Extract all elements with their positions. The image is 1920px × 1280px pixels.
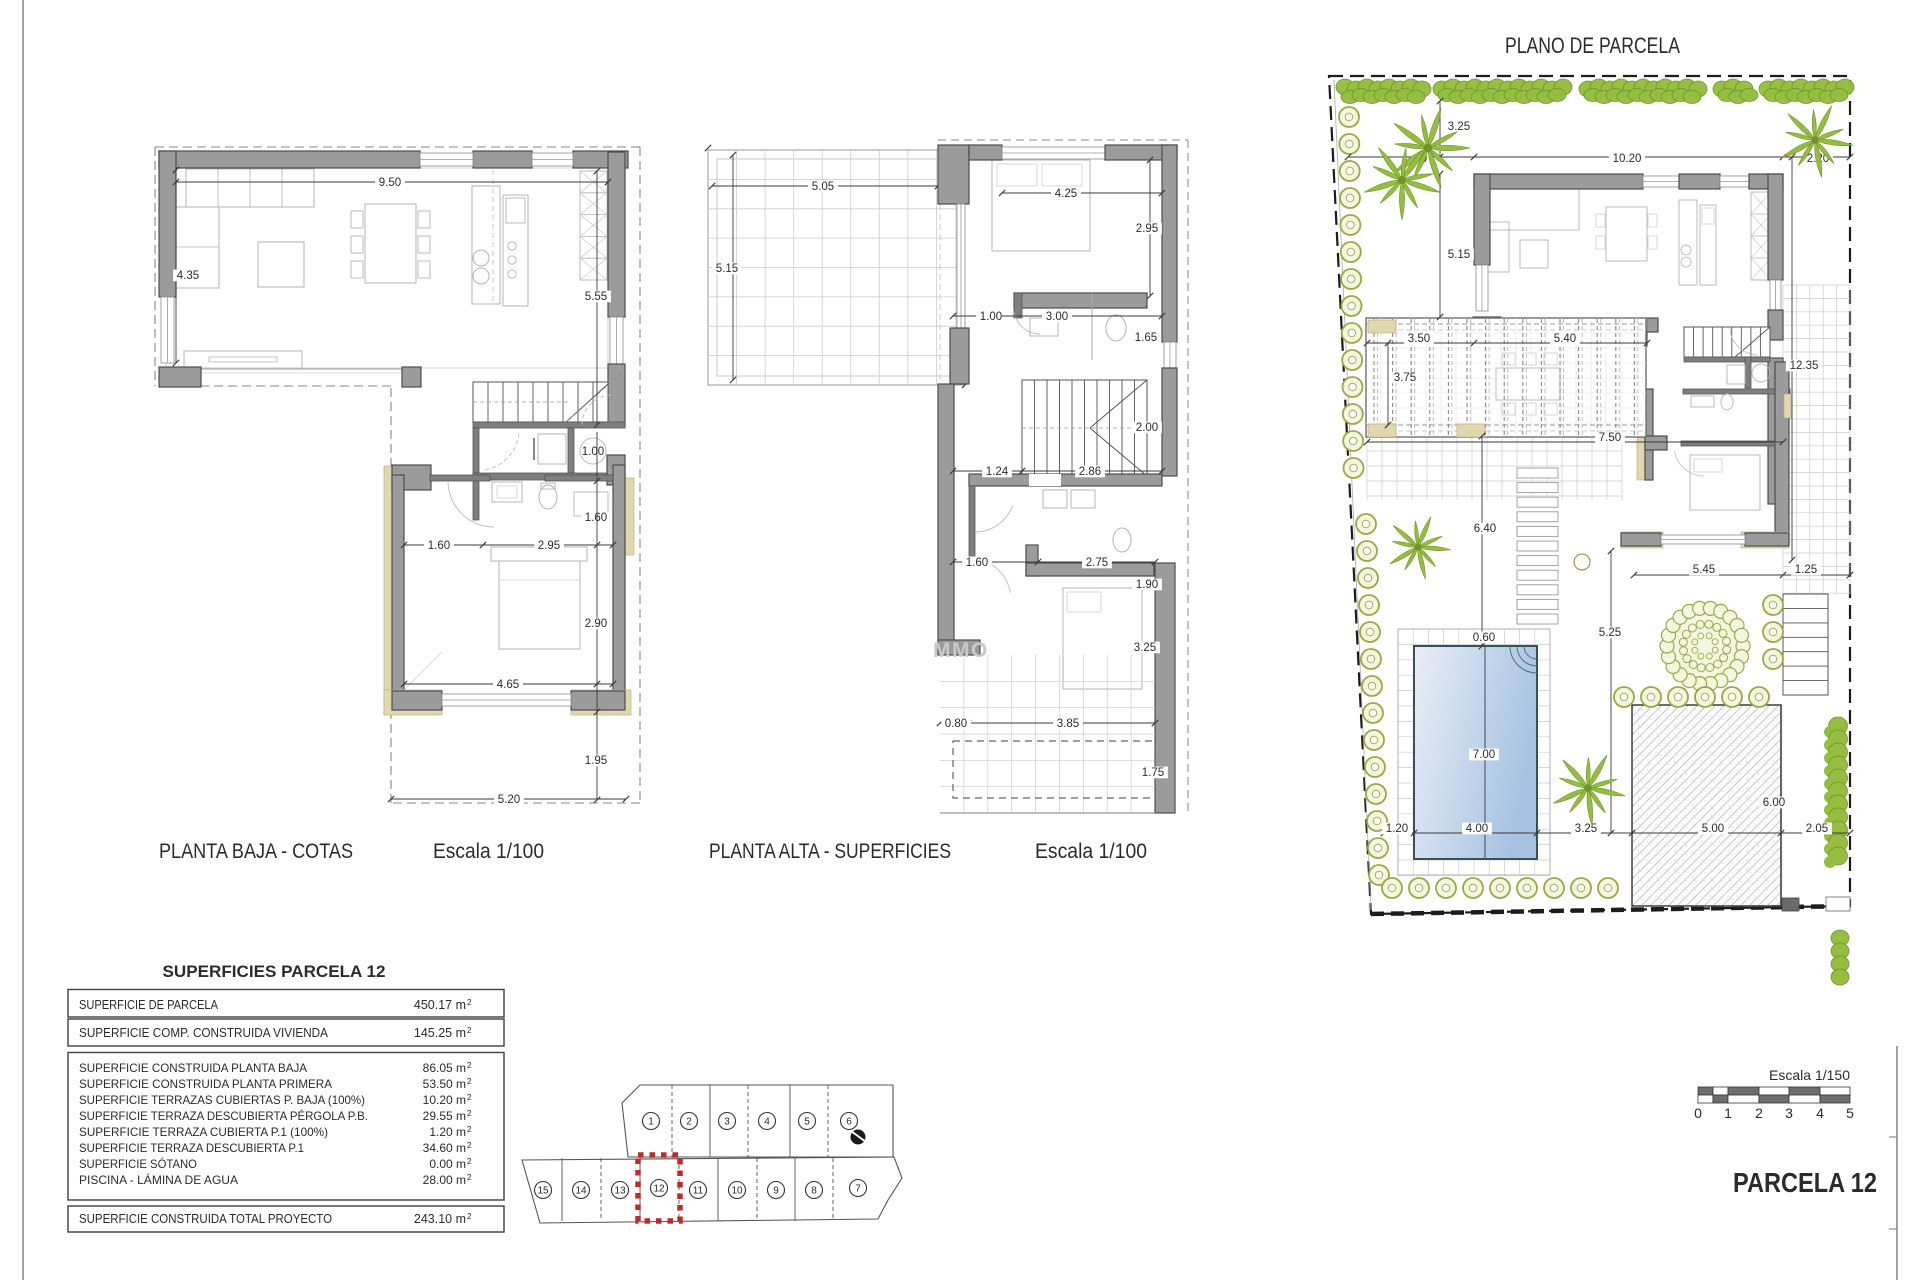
svg-text:86.05 m: 86.05 m	[423, 1061, 466, 1075]
svg-text:SUPERFICIE TERRAZA DESCUBIERTA: SUPERFICIE TERRAZA DESCUBIERTA PÉRGOLA P…	[79, 1108, 368, 1123]
svg-text:3.25: 3.25	[1448, 121, 1470, 133]
svg-text:1.20: 1.20	[1386, 823, 1408, 835]
svg-text:1.60: 1.60	[585, 512, 607, 524]
svg-text:2: 2	[467, 1212, 472, 1221]
svg-text:5: 5	[1846, 1105, 1854, 1121]
svg-text:2: 2	[467, 1026, 472, 1035]
svg-text:1.24: 1.24	[986, 466, 1009, 478]
svg-text:2: 2	[467, 1157, 471, 1166]
svg-text:2.75: 2.75	[1086, 557, 1108, 569]
svg-text:145.25 m: 145.25 m	[414, 1026, 466, 1040]
svg-text:2: 2	[686, 1117, 692, 1128]
svg-text:13: 13	[614, 1186, 626, 1197]
svg-text:1.60: 1.60	[966, 557, 988, 569]
svg-text:PLANTA ALTA - SUPERFICIES: PLANTA ALTA - SUPERFICIES	[709, 840, 951, 863]
svg-text:8: 8	[811, 1186, 817, 1197]
svg-text:SUPERFICIE TERRAZAS CUBIERTAS: SUPERFICIE TERRAZAS CUBIERTAS P. BAJA (1…	[79, 1093, 365, 1107]
svg-text:7.50: 7.50	[1599, 432, 1621, 444]
svg-text:PISCINA - LÁMINA DE AGUA: PISCINA - LÁMINA DE AGUA	[79, 1172, 238, 1187]
svg-text:0.00 m: 0.00 m	[429, 1157, 466, 1171]
svg-text:5.25: 5.25	[1599, 627, 1621, 639]
svg-text:10.20: 10.20	[1613, 153, 1642, 165]
svg-text:4: 4	[1816, 1105, 1824, 1121]
svg-text:2.86: 2.86	[1079, 466, 1101, 478]
svg-text:53.50 m: 53.50 m	[423, 1077, 466, 1091]
svg-text:3.85: 3.85	[1057, 718, 1079, 730]
svg-text:5.20: 5.20	[498, 794, 520, 806]
svg-text:1.00: 1.00	[582, 446, 604, 458]
svg-text:0: 0	[1694, 1105, 1702, 1121]
svg-text:5: 5	[804, 1117, 810, 1128]
svg-text:3.00: 3.00	[1046, 311, 1068, 323]
svg-text:9.50: 9.50	[379, 177, 401, 189]
svg-text:SUPERFICIE TERRAZA DESCUBIERTA: SUPERFICIE TERRAZA DESCUBIERTA P.1	[79, 1141, 304, 1155]
svg-text:0.80: 0.80	[945, 718, 967, 730]
svg-text:1.60: 1.60	[428, 540, 450, 552]
svg-text:243.10 m: 243.10 m	[414, 1212, 466, 1226]
svg-text:12.35: 12.35	[1790, 360, 1819, 372]
svg-text:3.25: 3.25	[1134, 642, 1156, 654]
svg-text:5.55: 5.55	[585, 291, 607, 303]
svg-text:2: 2	[467, 1061, 471, 1070]
svg-text:3.50: 3.50	[1408, 333, 1430, 345]
svg-text:1.25: 1.25	[1795, 564, 1817, 576]
svg-text:6.40: 6.40	[1474, 523, 1496, 535]
svg-text:1.20 m: 1.20 m	[429, 1125, 466, 1139]
svg-text:28.00 m: 28.00 m	[423, 1173, 466, 1187]
svg-text:PLANO DE PARCELA: PLANO DE PARCELA	[1505, 33, 1680, 58]
svg-text:3.25: 3.25	[1575, 823, 1597, 835]
svg-text:Escala 1/100: Escala 1/100	[433, 840, 544, 863]
svg-text:2: 2	[467, 1141, 471, 1150]
svg-text:SUPERFICIE CONSTRUIDA PLANTA P: SUPERFICIE CONSTRUIDA PLANTA PRIMERA	[79, 1077, 332, 1091]
svg-text:PLANTA BAJA - COTAS: PLANTA BAJA - COTAS	[159, 840, 353, 863]
svg-text:3: 3	[1785, 1105, 1793, 1121]
svg-text:2.95: 2.95	[1136, 223, 1158, 235]
svg-text:SUPERFICIE CONSTRUIDA TOTAL PR: SUPERFICIE CONSTRUIDA TOTAL PROYECTO	[79, 1212, 332, 1226]
svg-text:7: 7	[855, 1184, 861, 1195]
svg-text:29.55 m: 29.55 m	[423, 1109, 466, 1123]
svg-text:4.25: 4.25	[1055, 188, 1077, 200]
svg-text:SUPERFICIE SÓTANO: SUPERFICIE SÓTANO	[79, 1156, 197, 1171]
svg-text:450.17 m: 450.17 m	[414, 998, 466, 1012]
svg-text:34.60 m: 34.60 m	[423, 1141, 466, 1155]
svg-text:5.00: 5.00	[1702, 823, 1724, 835]
svg-text:4.35: 4.35	[177, 270, 199, 282]
svg-text:Escala 1/150: Escala 1/150	[1769, 1067, 1850, 1083]
svg-text:1.90: 1.90	[1136, 579, 1158, 591]
svg-text:5.15: 5.15	[1448, 249, 1470, 261]
svg-text:0.60: 0.60	[1473, 632, 1495, 644]
svg-text:2.00: 2.00	[1136, 422, 1158, 434]
svg-text:2: 2	[467, 1173, 471, 1182]
svg-text:MMO: MMO	[933, 639, 989, 662]
svg-text:6.00: 6.00	[1763, 797, 1785, 809]
svg-text:2: 2	[467, 998, 472, 1007]
svg-text:15: 15	[537, 1186, 549, 1197]
svg-text:4: 4	[764, 1117, 770, 1128]
svg-text:SUPERFICIE DE PARCELA: SUPERFICIE DE PARCELA	[79, 998, 219, 1012]
svg-text:5.05: 5.05	[812, 181, 834, 193]
svg-text:1.95: 1.95	[585, 755, 607, 767]
svg-text:2: 2	[467, 1109, 471, 1118]
svg-text:2.05: 2.05	[1806, 823, 1828, 835]
svg-text:SUPERFICIES PARCELA 12: SUPERFICIES PARCELA 12	[163, 962, 386, 981]
svg-text:1.00: 1.00	[980, 311, 1002, 323]
svg-text:2.90: 2.90	[585, 618, 607, 630]
svg-text:2: 2	[467, 1125, 471, 1134]
svg-text:2.95: 2.95	[538, 540, 560, 552]
svg-text:2: 2	[467, 1093, 471, 1102]
svg-text:5.15: 5.15	[716, 263, 738, 275]
svg-text:1.75: 1.75	[1142, 767, 1164, 779]
svg-text:7.00: 7.00	[1473, 749, 1495, 761]
svg-text:10.20 m: 10.20 m	[423, 1093, 466, 1107]
svg-text:5.45: 5.45	[1693, 564, 1715, 576]
svg-text:5.40: 5.40	[1554, 333, 1576, 345]
svg-text:6: 6	[846, 1117, 852, 1128]
svg-text:2: 2	[1755, 1105, 1763, 1121]
svg-text:SUPERFICIE CONSTRUIDA PLANTA B: SUPERFICIE CONSTRUIDA PLANTA BAJA	[79, 1061, 307, 1075]
svg-text:4.65: 4.65	[497, 679, 519, 691]
svg-text:3.75: 3.75	[1394, 372, 1416, 384]
svg-text:10: 10	[731, 1186, 743, 1197]
svg-text:2: 2	[467, 1077, 471, 1086]
svg-text:11: 11	[693, 1186, 704, 1197]
svg-text:SUPERFICIE COMP. CONSTRUIDA VI: SUPERFICIE COMP. CONSTRUIDA VIVIENDA	[79, 1026, 329, 1040]
svg-text:Escala 1/100: Escala 1/100	[1035, 840, 1147, 863]
svg-text:12: 12	[653, 1184, 665, 1195]
svg-text:1.65: 1.65	[1135, 332, 1157, 344]
svg-text:1: 1	[648, 1117, 654, 1128]
svg-text:9: 9	[773, 1186, 779, 1197]
svg-text:1: 1	[1724, 1105, 1732, 1121]
svg-text:3: 3	[724, 1117, 730, 1128]
svg-text:PARCELA 12: PARCELA 12	[1733, 1167, 1877, 1198]
svg-text:SUPERFICIE TERRAZA CUBIERTA P.: SUPERFICIE TERRAZA CUBIERTA P.1 (100%)	[79, 1125, 328, 1139]
svg-text:14: 14	[575, 1186, 587, 1197]
svg-text:4.00: 4.00	[1466, 823, 1488, 835]
